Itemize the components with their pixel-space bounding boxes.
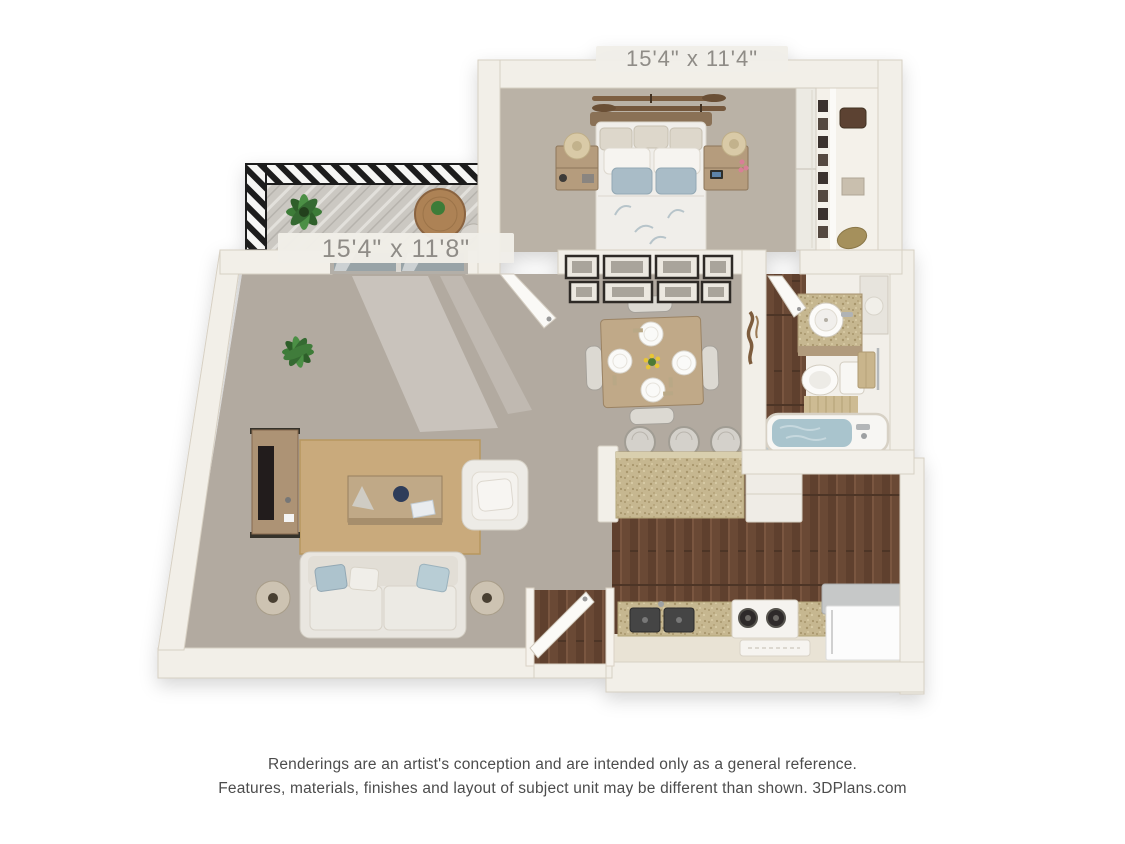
coffee-table bbox=[348, 476, 442, 525]
bedroom-dimension-label: 15'4" x 11'4" bbox=[596, 46, 788, 72]
suitcase bbox=[840, 108, 866, 128]
pillow bbox=[670, 128, 702, 150]
door-knob bbox=[583, 597, 588, 602]
pillow-blue bbox=[612, 168, 652, 194]
storage-box bbox=[842, 178, 864, 195]
entry bbox=[526, 588, 614, 678]
closet-shelf bbox=[830, 88, 836, 250]
door-knob bbox=[797, 307, 801, 311]
table-plant bbox=[431, 201, 445, 215]
floor-lamp-left bbox=[256, 581, 290, 615]
picture-frame bbox=[566, 256, 598, 278]
sofa-pillow-white bbox=[349, 567, 379, 591]
page: 15'4" x 11'4" 15'4" x 11'8" Renderings a… bbox=[0, 0, 1125, 844]
plate bbox=[608, 349, 633, 374]
disclaimer-line-2: Features, materials, finishes and layout… bbox=[0, 777, 1125, 801]
plate bbox=[639, 322, 664, 347]
door-knob bbox=[547, 317, 552, 322]
decor-bowl bbox=[393, 486, 409, 502]
bath-mat bbox=[804, 396, 858, 414]
pillow bbox=[634, 126, 668, 148]
armchair bbox=[462, 460, 528, 530]
floor-plan-rendering: 15'4" x 11'4" 15'4" x 11'8" bbox=[0, 0, 1125, 844]
living-room-dimension-text: 15'4" x 11'8" bbox=[322, 235, 470, 263]
sink-faucet bbox=[841, 312, 853, 317]
bar-end-panel bbox=[598, 446, 618, 522]
towel-rack bbox=[858, 348, 878, 390]
picture-frame bbox=[570, 282, 598, 302]
floor-lamp-right bbox=[470, 581, 504, 615]
picture-frame bbox=[604, 256, 650, 278]
living-room-dimension-label: 15'4" x 11'8" bbox=[278, 233, 514, 263]
pillow-blue bbox=[656, 168, 696, 194]
pillow bbox=[600, 128, 632, 150]
floor-plan: 15'4" x 11'4" 15'4" x 11'8" bbox=[158, 46, 924, 694]
dining-chair bbox=[585, 346, 603, 391]
sofa bbox=[300, 552, 466, 638]
disclaimer: Renderings are an artist's conception an… bbox=[0, 753, 1125, 801]
dining-chair bbox=[630, 407, 675, 425]
sink-faucet bbox=[658, 601, 664, 607]
sofa-pillow-blue bbox=[416, 564, 450, 593]
refrigerator bbox=[822, 584, 902, 660]
bed bbox=[590, 112, 712, 254]
tv bbox=[258, 446, 274, 520]
disclaimer-line-1: Renderings are an artist's conception an… bbox=[0, 753, 1125, 777]
picture-frame bbox=[658, 282, 698, 302]
stove bbox=[732, 600, 810, 656]
closet-sliding-doors bbox=[796, 88, 816, 250]
tv-console bbox=[250, 428, 300, 538]
bathroom-vanity bbox=[798, 294, 862, 356]
bathroom-mirror bbox=[860, 276, 888, 334]
tub-faucet bbox=[856, 424, 870, 430]
picture-frame bbox=[704, 256, 732, 278]
breakfast-bar-counter bbox=[616, 452, 744, 518]
bath-water bbox=[772, 419, 852, 447]
plate bbox=[641, 378, 666, 403]
plate bbox=[672, 350, 697, 375]
balcony-plant bbox=[286, 194, 322, 230]
dining-chair bbox=[701, 346, 719, 391]
gallery-wall-frames bbox=[566, 256, 732, 302]
bathtub bbox=[766, 414, 888, 452]
picture-frame bbox=[656, 256, 698, 278]
sofa-pillow-blue bbox=[314, 564, 347, 592]
bedroom-dimension-text: 15'4" x 11'4" bbox=[626, 46, 758, 71]
picture-frame bbox=[702, 282, 730, 302]
picture-frame bbox=[604, 282, 652, 302]
armchair-pillow bbox=[477, 478, 514, 511]
